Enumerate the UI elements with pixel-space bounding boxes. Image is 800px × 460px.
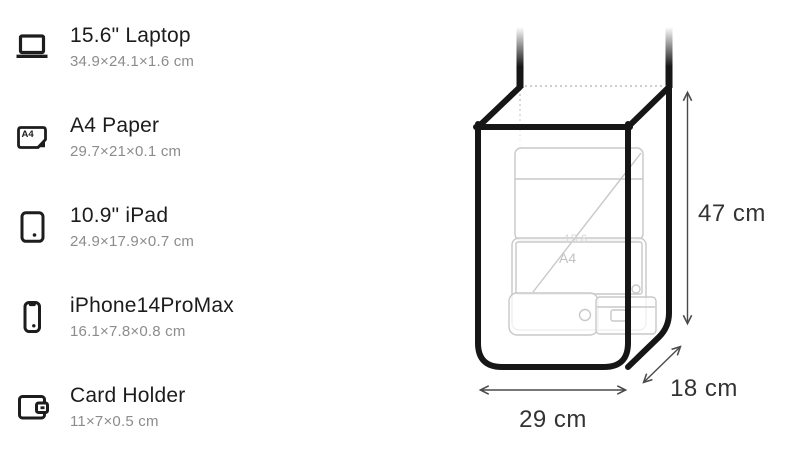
laptop-outline	[515, 148, 643, 240]
ghost-laptop-label: 15.6	[564, 232, 588, 246]
ghost-a4-label: A4	[559, 250, 576, 266]
bag-straps	[517, 27, 673, 88]
item-dims: 11×7×0.5 cm	[70, 413, 185, 430]
a4-paper-icon: A4	[10, 119, 54, 155]
a4-icon-label: A4	[22, 129, 35, 140]
depth-label: 18 cm	[670, 375, 738, 402]
item-title: 10.9" iPad	[70, 204, 194, 228]
size-comparison-panel: 15.6" Laptop 34.9×24.1×1.6 cm A4 A4 Pape…	[8, 2, 338, 452]
inside-items: 15.6 A4	[509, 148, 656, 335]
item-dims: 24.9×17.9×0.7 cm	[70, 233, 194, 250]
item-row-card-holder: Card Holder 11×7×0.5 cm	[8, 362, 338, 452]
item-dims: 29.7×21×0.1 cm	[70, 143, 181, 160]
item-row-a4-paper: A4 A4 Paper 29.7×21×0.1 cm	[8, 92, 338, 182]
laptop-icon	[10, 29, 54, 65]
iphone-outline	[509, 293, 598, 335]
item-row-iphone: iPhone14ProMax 16.1×7.8×0.8 cm	[8, 272, 338, 362]
item-row-ipad: 10.9" iPad 24.9×17.9×0.7 cm	[8, 182, 338, 272]
iphone-icon	[10, 299, 54, 335]
width-label: 29 cm	[519, 406, 587, 433]
item-row-laptop: 15.6" Laptop 34.9×24.1×1.6 cm	[8, 2, 338, 92]
ipad-icon	[10, 209, 54, 245]
item-title: iPhone14ProMax	[70, 294, 234, 318]
card-holder-icon	[10, 389, 54, 425]
item-dims: 34.9×24.1×1.6 cm	[70, 53, 194, 70]
height-label: 47 cm	[698, 200, 766, 227]
item-title: 15.6" Laptop	[70, 24, 194, 48]
item-dims: 16.1×7.8×0.8 cm	[70, 323, 234, 340]
a4-outline	[516, 242, 642, 294]
item-title: A4 Paper	[70, 114, 181, 138]
bag-diagram: 15.6 A4 47 cm 29 cm 18 cm	[440, 0, 800, 455]
hidden-edges	[520, 86, 669, 150]
item-title: Card Holder	[70, 384, 185, 408]
